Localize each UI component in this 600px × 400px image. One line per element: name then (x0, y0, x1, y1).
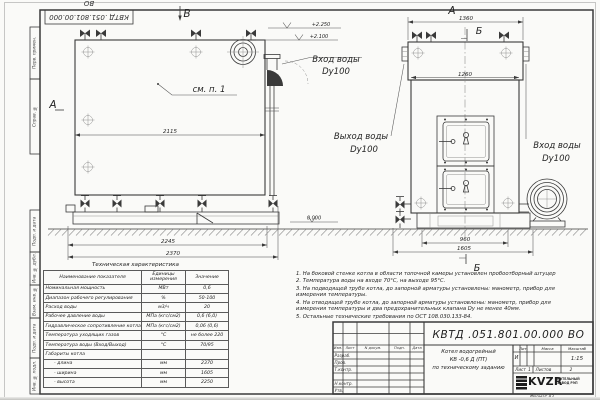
left-view: В А см. п. 1 2115 2245 2370 +2.250 +2.10… (48, 6, 362, 260)
col-podp: Подп. (389, 346, 410, 350)
note-4: 4. На отводящей трубе котла, до запорной… (296, 300, 568, 314)
water-outlet-dy: Dy100 (350, 145, 378, 155)
water-inlet-label-left: Вход воды (312, 55, 360, 65)
water-inlet-dy-right: Dy100 (542, 154, 570, 164)
margin-label-inv-podl: Инв. № подл. (30, 358, 40, 394)
scale-label: Масштаб (561, 346, 593, 351)
title-block-product: Котел водогрейный КВ -0,6 Д (ПТ) по техн… (425, 348, 512, 372)
dim-2115: 2115 (163, 129, 177, 135)
table-row: - длинамм2370 (44, 359, 229, 368)
sheets-value: 2 (567, 367, 575, 372)
dim-1260: 1260 (458, 72, 472, 78)
brand-logo-icon (516, 376, 527, 390)
top-stamp: КВТД .051.801.00.000 ВО (45, 10, 133, 24)
section-label-v: В (183, 8, 190, 20)
table-row: Диапазон рабочего регулирования%50-100 (44, 293, 229, 302)
product-line-1: Котел водогрейный (425, 348, 512, 356)
table-row: - ширинамм1605 (44, 369, 229, 378)
table-row: Габариты котла (44, 350, 229, 359)
sheet-label: Лист (514, 367, 527, 372)
row-razrab: Разраб. (335, 353, 357, 358)
note-5: 5. Остальные технические требования по О… (296, 314, 568, 321)
drawing-sheet: В А см. п. 1 2115 2245 2370 +2.250 +2.10… (0, 0, 600, 400)
col-header-units: Единицы измерения (142, 271, 186, 285)
tech-table-title: Техническая характеристика (43, 262, 228, 268)
see-item-note: см. п. 1 (193, 85, 226, 95)
view-label-a: А (447, 5, 455, 17)
dim-960: 960 (460, 237, 471, 243)
dim-2245: 2245 (161, 239, 175, 245)
water-inlet-label-right: Вход воды (533, 141, 581, 151)
margin-label-inv-dubl: Инв. № дубл. (30, 252, 40, 285)
note-3: 3. На подводящей трубе котла, до запорно… (296, 286, 568, 300)
margin-label-vzam-inv: Взам. инв. № (30, 285, 40, 318)
elevation-2250: +2.250 (312, 22, 331, 28)
col-docnum: N докум. (357, 346, 389, 350)
section-label-b-top: Б (476, 26, 483, 37)
tech-table-header-row: Наименование показателя Единицы измерени… (44, 271, 229, 285)
row-nkontr: Н.контр. (335, 381, 357, 386)
water-inlet-dy-left: Dy100 (322, 67, 350, 77)
table-row: Гидравлическое сопротивление котлаМПа (к… (44, 322, 229, 331)
col-data: Дата (410, 346, 424, 350)
tech-table: Наименование показателя Единицы измерени… (43, 270, 229, 388)
water-outlet-label: Выход воды (334, 132, 388, 142)
margin-label-podp-data-2: Подп. и дата (30, 318, 40, 358)
scale-value: 1:15 (561, 356, 593, 362)
lit-value: И (513, 355, 520, 361)
dim-2370: 2370 (166, 251, 180, 257)
right-view: А 1360 Б 1260 Выход воды Dy100 Вход воды… (334, 5, 581, 274)
elevation-2100: +2.100 (310, 34, 329, 40)
dim-1360: 1360 (459, 16, 473, 22)
col-list: Лист (343, 346, 357, 350)
row-utv: Утв. (335, 388, 357, 393)
table-row: Температура уходящих газов°Сне более 220 (44, 331, 229, 340)
technical-notes: 1. На боковой стенке котла в области топ… (296, 271, 568, 321)
fan-blower (519, 179, 567, 227)
table-row: Температура воды (Вход/Выход)°С70/95 (44, 340, 229, 349)
tech-table-block: Техническая характеристика Наименование … (43, 262, 228, 388)
col-header-name: Наименование показателя (44, 271, 142, 285)
mass-label: Масса (534, 346, 561, 351)
product-line-2: КВ -0,6 Д (ПТ) (425, 356, 512, 364)
row-tkontr: Т.контр. (335, 367, 357, 372)
elevation-zero: 0.000 (307, 216, 321, 222)
margin-label-podp-data-1: Подп. и дата (30, 210, 40, 252)
sheet-value: 1 (527, 367, 532, 372)
title-block-doc-number: КВТД .051.801.00.000 ВО (425, 325, 592, 344)
lit-label: Лит. (513, 346, 534, 351)
table-row: Расход водым3/ч20 (44, 303, 229, 312)
table-row: Номинальная мощностьМВт0,6 (44, 284, 229, 293)
product-line-3: по техническому заданию (425, 364, 512, 372)
col-izm: Изм. (333, 346, 343, 350)
margin-label-perv-primen: Перв. примен. (30, 27, 40, 79)
sheets-label: Листов (535, 367, 552, 372)
note-1: 1. На боковой стенке котла в области топ… (296, 271, 568, 278)
brand-subtitle: КОТЕЛЬНЫЙ ЗАВОД РЭП (557, 377, 591, 385)
note-2: 2. Температура воды на входе 70°С, на вы… (296, 278, 568, 285)
table-row: - высотамм2250 (44, 378, 229, 387)
margin-label-sprav-no: Справ. № (30, 79, 40, 154)
section-label-a-left: А (48, 99, 56, 111)
brand-subtitle-2: ЗАВОД РЭП (557, 381, 591, 385)
row-prov: Пров. (335, 360, 357, 365)
table-row: Рабочее давление водыМПа (кгс/см2)0,6 (6… (44, 312, 229, 321)
dim-1605: 1605 (457, 246, 471, 252)
col-header-value: Значение (186, 271, 229, 285)
